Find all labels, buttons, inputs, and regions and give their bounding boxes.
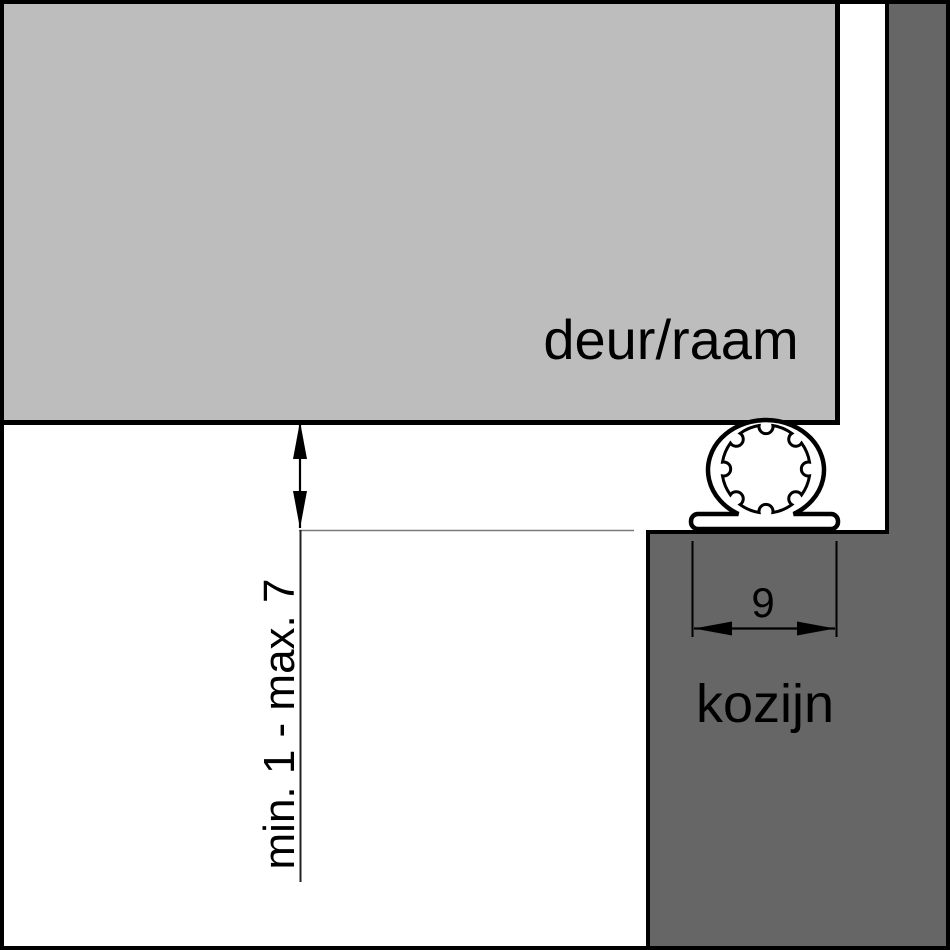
gap-range-label: min. 1 - max. 7 [255,579,304,870]
door-label: deur/raam [543,308,798,371]
groove-width-label: 9 [751,579,774,626]
seal-cross-section-diagram: min. 1 - max. 7 9 deur/raam kozijn [0,0,950,950]
frame-label: kozijn [696,674,834,734]
diagram-canvas: min. 1 - max. 7 9 deur/raam kozijn [0,0,950,950]
